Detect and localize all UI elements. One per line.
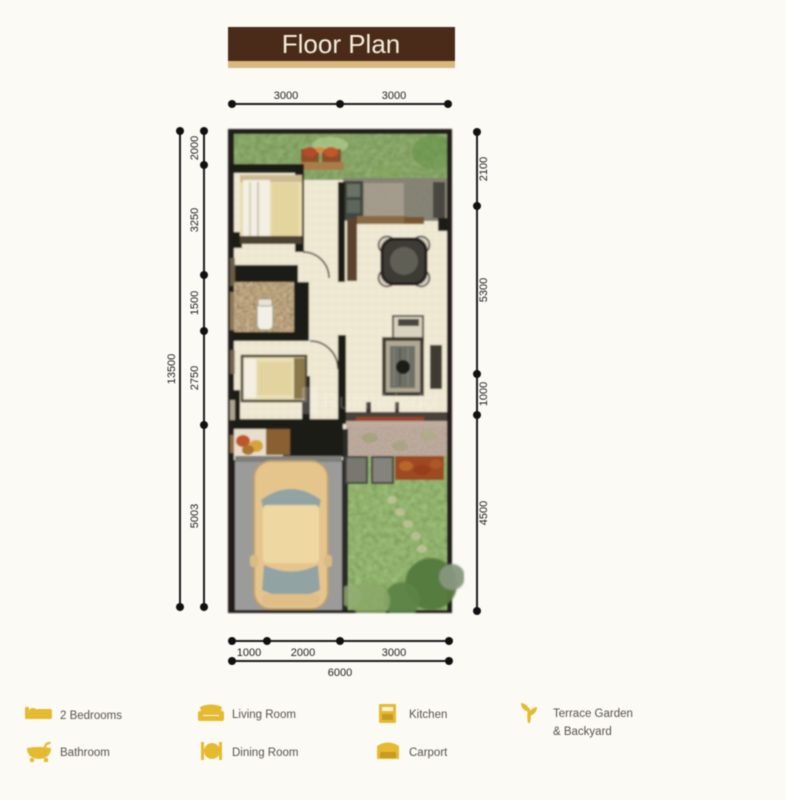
svg-text:1000: 1000: [237, 647, 261, 659]
svg-text:5300: 5300: [478, 278, 490, 302]
svg-text:3000: 3000: [382, 90, 406, 102]
svg-text:5003: 5003: [189, 504, 201, 528]
svg-text:Carport: Carport: [409, 747, 448, 759]
svg-text:Terrace Garden: Terrace Garden: [553, 708, 633, 720]
svg-text:Living Room: Living Room: [232, 709, 296, 721]
svg-text:Dining Room: Dining Room: [232, 747, 298, 759]
svg-text:2000: 2000: [291, 647, 315, 659]
svg-text:1000: 1000: [478, 382, 490, 406]
svg-text:Kitchen: Kitchen: [409, 709, 447, 721]
svg-text:Rumahindo: Rumahindo: [323, 389, 436, 414]
svg-text:13500: 13500: [166, 354, 178, 385]
svg-text:1500: 1500: [189, 291, 201, 315]
svg-text:2000: 2000: [189, 136, 201, 160]
svg-text:Floor Plan: Floor Plan: [282, 29, 401, 59]
svg-text:2100: 2100: [478, 157, 490, 181]
svg-text:2 Bedrooms: 2 Bedrooms: [60, 710, 122, 722]
svg-text:3000: 3000: [274, 90, 298, 102]
svg-text:2750: 2750: [189, 366, 201, 390]
svg-text:3250: 3250: [189, 208, 201, 232]
svg-text:& Backyard: & Backyard: [553, 726, 612, 738]
svg-text:6000: 6000: [328, 667, 352, 679]
svg-text:4500: 4500: [478, 501, 490, 525]
svg-text:Bathroom: Bathroom: [60, 747, 110, 759]
svg-text:3000: 3000: [382, 647, 406, 659]
